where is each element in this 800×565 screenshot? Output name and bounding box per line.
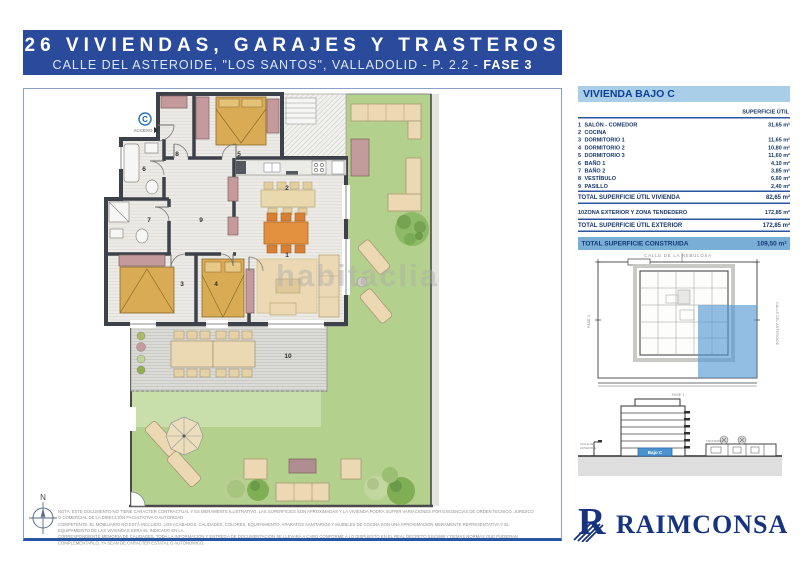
total-exterior-row: TOTAL SUPERFICIE ÚTIL EXTERIOR 172,85 m² bbox=[578, 220, 790, 231]
room-label-1: 1 bbox=[285, 252, 289, 259]
legal-disclaimer: NOTA: ESTE DOCUMENTO NO TIENE CARÁCTER C… bbox=[58, 509, 538, 565]
exterior-label: ZONA EXTERIOR Y ZONA TENDEDERO bbox=[584, 209, 687, 215]
bed-dorm3 bbox=[216, 97, 266, 145]
row-label: 3DORMITORIO 1 bbox=[578, 137, 625, 143]
subtitle-address: CALLE DEL ASTEROIDE, "LOS SANTOS", VALLA… bbox=[53, 58, 484, 72]
table-row: 2COCINA bbox=[578, 129, 790, 137]
area-table: 1SALÓN - COMEDOR 31,65 m² 2COCINA 3DORMI… bbox=[578, 119, 790, 191]
table-row: 4DORMITORIO 2 10,80 m² bbox=[578, 144, 790, 152]
tree bbox=[395, 212, 429, 246]
section-left-label-2: ASTEROIDE bbox=[580, 446, 596, 450]
row-label: 1SALÓN - COMEDOR bbox=[578, 122, 637, 128]
total-construida-value: 109,50 m² bbox=[757, 240, 787, 248]
row-label: 2COCINA bbox=[578, 130, 606, 136]
section-right-label: TRASTEROS bbox=[706, 439, 723, 443]
subtitle-phase: FASE 3 bbox=[483, 58, 532, 72]
room-label-7: 7 bbox=[147, 217, 151, 224]
brochure-page: 26 VIVIENDAS, GARAJES Y TRASTEROS CALLE … bbox=[0, 0, 800, 565]
fase4-label: FASE 4 bbox=[587, 315, 591, 328]
section-trees bbox=[720, 436, 746, 444]
room-label-8: 8 bbox=[175, 151, 179, 158]
row-value: 3,85 m² bbox=[771, 168, 790, 174]
site-key-plan: CALLE DE LA NEBULOSA FASE 4 CALLE DEL AS… bbox=[578, 250, 790, 400]
room-label-3: 3 bbox=[180, 281, 184, 288]
room-label-10: 10 bbox=[284, 353, 292, 360]
logo-wordmark: RAIMCONSA bbox=[616, 510, 788, 539]
table-row: 7BAÑO 2 3,85 m² bbox=[578, 167, 790, 175]
compass-icon: N bbox=[26, 490, 60, 538]
page-subtitle: CALLE DEL ASTEROIDE, "LOS SANTOS", VALLA… bbox=[23, 58, 562, 72]
header-banner: 26 VIVIENDAS, GARAJES Y TRASTEROS CALLE … bbox=[23, 30, 562, 75]
column-header: SUPERFICIE ÚTIL bbox=[578, 109, 790, 115]
building-section: Bajo C CALLE DEL ASTEROIDE TRASTEROS bbox=[578, 398, 790, 493]
exterior-value: 172,85 m² bbox=[765, 209, 790, 215]
unit-title: VIVIENDA BAJO C bbox=[578, 86, 790, 102]
row-label: 7BAÑO 2 bbox=[578, 168, 605, 174]
floor-plan-drawing: 10 bbox=[24, 89, 561, 533]
disclaimer-line-2: COMPETENTE. EL MOBILIARIO NO ESTÁ INCLUI… bbox=[58, 522, 538, 535]
coffee-table bbox=[276, 279, 300, 293]
row-value: 11,60 m² bbox=[768, 153, 790, 159]
divider bbox=[578, 230, 790, 232]
table-row: 8VESTÍBULO 6,60 m² bbox=[578, 175, 790, 183]
fase1-label: FASE 1 bbox=[672, 393, 685, 397]
total-vivienda-label: TOTAL SUPERFICIE ÚTIL VIVIENDA bbox=[578, 194, 680, 201]
total-construida-row: TOTAL SUPERFICIE CONSTRUIDA 109,50 m² bbox=[578, 237, 790, 250]
divider bbox=[578, 202, 790, 204]
access-label: ACCESO bbox=[133, 128, 153, 133]
unit-location-highlight bbox=[698, 305, 757, 378]
row-label: 10ZONA EXTERIOR Y ZONA TENDEDERO bbox=[578, 209, 687, 215]
company-logo: R RAIMCONSA bbox=[572, 500, 796, 542]
disclaimer-line-1: NOTA: ESTE DOCUMENTO NO TIENE CARÁCTER C… bbox=[58, 509, 538, 522]
row-label: 8VESTÍBULO bbox=[578, 176, 616, 182]
bed-dorm2 bbox=[202, 259, 244, 317]
row-value: 2,40 m² bbox=[771, 183, 790, 189]
row-label: 6BAÑO 1 bbox=[578, 160, 605, 166]
armchair bbox=[270, 303, 296, 315]
room-label-5: 5 bbox=[237, 151, 241, 158]
deck-zone-10: 10 bbox=[131, 326, 327, 391]
room-label-4: 4 bbox=[214, 281, 218, 288]
table-row: 9PASILLO 2,40 m² bbox=[578, 183, 790, 191]
row-label: 5DORMITORIO 3 bbox=[578, 153, 625, 159]
street-top-label: CALLE DE LA NEBULOSA bbox=[644, 253, 712, 258]
bed-dorm1 bbox=[120, 267, 174, 313]
access-letter: C bbox=[142, 115, 148, 124]
page-title: 26 VIVIENDAS, GARAJES Y TRASTEROS bbox=[23, 35, 562, 57]
covered-terrace bbox=[282, 94, 346, 158]
table-row: 3DORMITORIO 1 11,65 m² bbox=[578, 136, 790, 144]
row-value: 10,80 m² bbox=[768, 145, 790, 151]
street-right-label: CALLE DEL ASTEROIDE bbox=[775, 302, 779, 346]
total-exterior-label: TOTAL SUPERFICIE ÚTIL EXTERIOR bbox=[578, 222, 682, 229]
row-value: 4,10 m² bbox=[771, 160, 790, 166]
floor-plan-frame: 10 bbox=[23, 88, 562, 541]
room-label-9: 9 bbox=[199, 217, 203, 224]
total-vivienda-value: 82,65 m² bbox=[766, 194, 790, 201]
sidewalk bbox=[431, 94, 439, 506]
exterior-row: 10ZONA EXTERIOR Y ZONA TENDEDERO 172,85 … bbox=[578, 208, 790, 216]
compass-north-label: N bbox=[40, 493, 46, 502]
room-label-2: 2 bbox=[285, 185, 289, 192]
room-label-6: 6 bbox=[142, 166, 146, 173]
row-value: 11,65 m² bbox=[768, 137, 790, 143]
table-row: 5DORMITORIO 3 11,60 m² bbox=[578, 152, 790, 160]
table-row: 6BAÑO 1 4,10 m² bbox=[578, 159, 790, 167]
garden-gate bbox=[127, 407, 136, 431]
total-exterior-value: 172,85 m² bbox=[763, 222, 790, 229]
row-label: 4DORMITORIO 2 bbox=[578, 145, 625, 151]
disclaimer-line-3: CORRESPONDIENTE MEMORIA DE CALIDADES. TO… bbox=[58, 534, 538, 547]
access-badge: C ACCESO bbox=[133, 113, 159, 133]
logo-r-icon: R bbox=[574, 501, 606, 542]
row-value: 31,65 m² bbox=[768, 122, 790, 128]
bajo-c-label: Bajo C bbox=[648, 450, 663, 455]
outdoor-sofa bbox=[276, 483, 329, 501]
total-vivienda-row: TOTAL SUPERFICIE ÚTIL VIVIENDA 82,65 m² bbox=[578, 192, 790, 203]
total-construida-label: TOTAL SUPERFICIE CONSTRUIDA bbox=[582, 240, 689, 248]
row-label: 9PASILLO bbox=[578, 183, 608, 189]
sofa bbox=[319, 255, 339, 317]
row-value: 6,60 m² bbox=[771, 176, 790, 182]
table-row: 1SALÓN - COMEDOR 31,65 m² bbox=[578, 121, 790, 129]
